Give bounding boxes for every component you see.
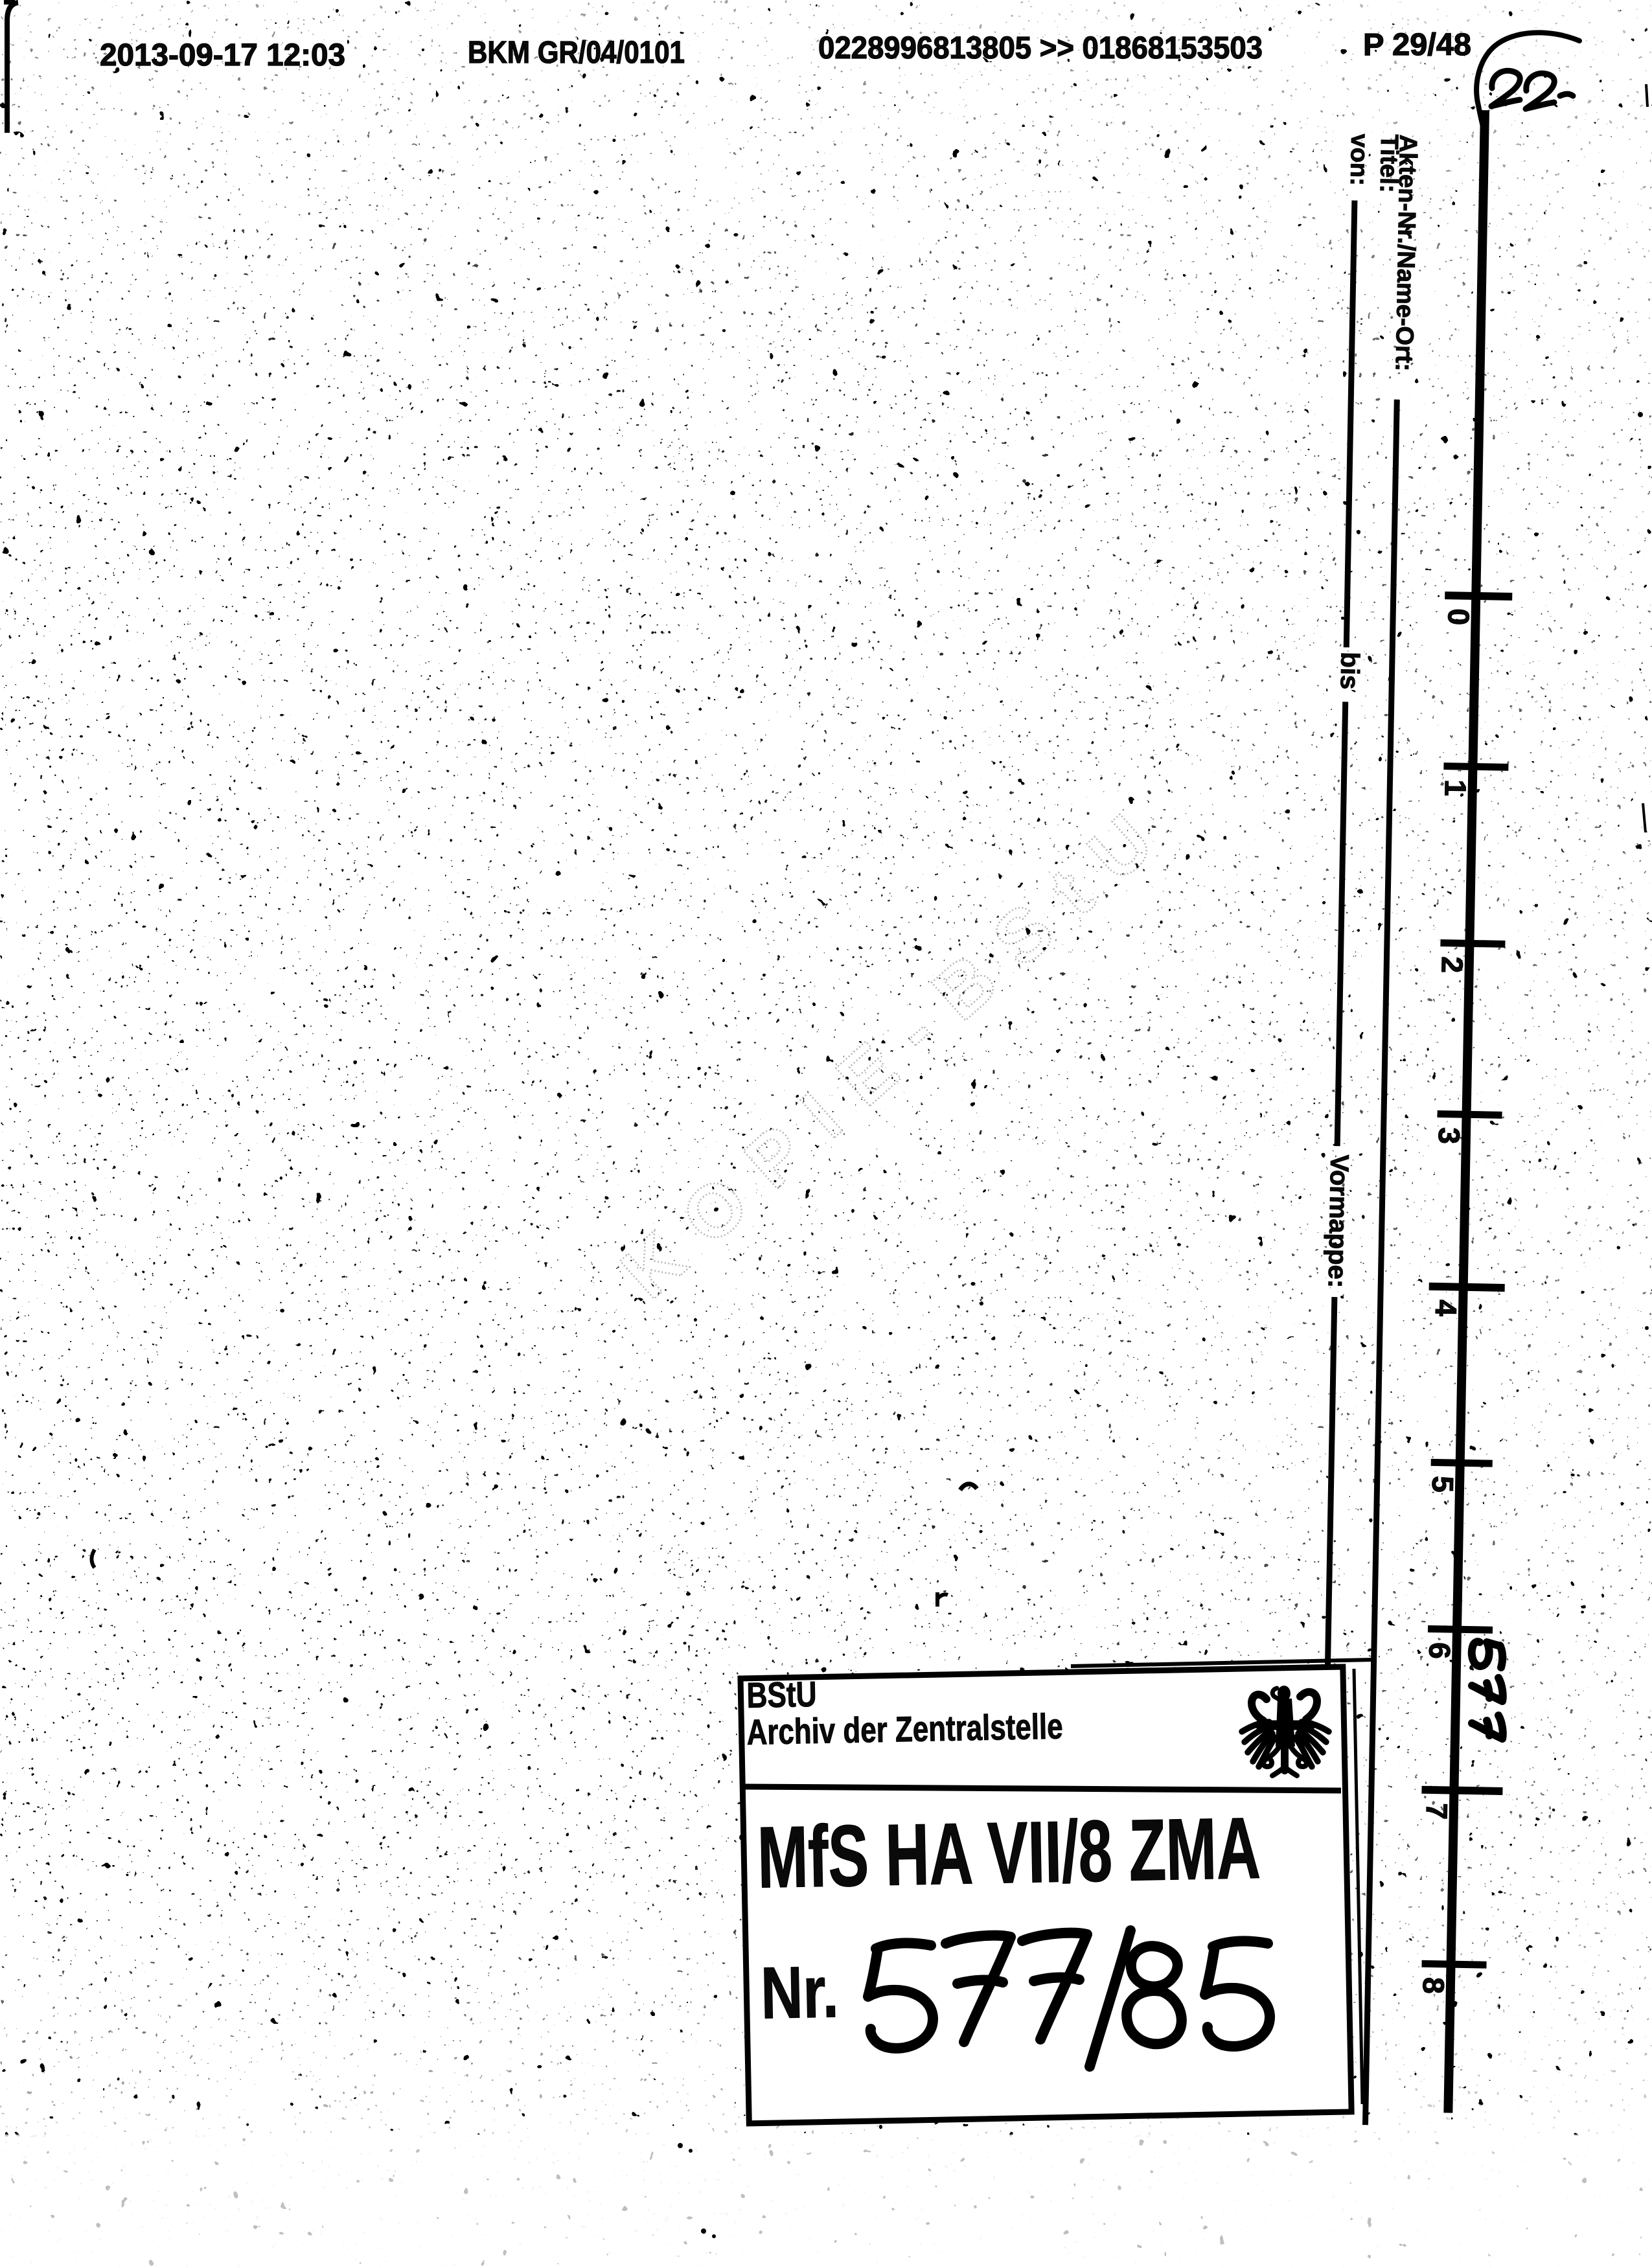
svg-text:von:: von: [1345, 133, 1373, 186]
svg-text:7: 7 [1420, 1803, 1454, 1820]
svg-text:Archiv der Zentralstelle: Archiv der Zentralstelle [746, 1706, 1063, 1752]
svg-text:4: 4 [1429, 1300, 1463, 1317]
svg-text:MfS HA VII/8 ZMA: MfS HA VII/8 ZMA [757, 1800, 1261, 1907]
svg-text:3: 3 [1432, 1127, 1466, 1145]
svg-text:0: 0 [1441, 608, 1475, 626]
svg-text:Titel:: Titel: [1375, 134, 1403, 193]
svg-text:0228996813805 >> 01868153503: 0228996813805 >> 01868153503 [818, 31, 1263, 65]
svg-text:Vormappe:: Vormappe: [1323, 1154, 1354, 1289]
svg-text:P 29/48: P 29/48 [1363, 28, 1471, 62]
svg-text:8: 8 [1417, 1977, 1451, 1995]
svg-text:BStU: BStU [746, 1674, 817, 1715]
svg-text:bis: bis [1335, 652, 1364, 690]
svg-text:Nr.: Nr. [760, 1951, 839, 2033]
svg-text:BKM GR/04/0101: BKM GR/04/0101 [468, 36, 685, 70]
svg-text:5: 5 [1426, 1476, 1460, 1493]
svg-text:1: 1 [1439, 779, 1473, 797]
svg-text:6: 6 [1423, 1642, 1456, 1660]
svg-text:2: 2 [1436, 956, 1469, 974]
svg-text:2013-09-17 12:03: 2013-09-17 12:03 [100, 38, 345, 73]
